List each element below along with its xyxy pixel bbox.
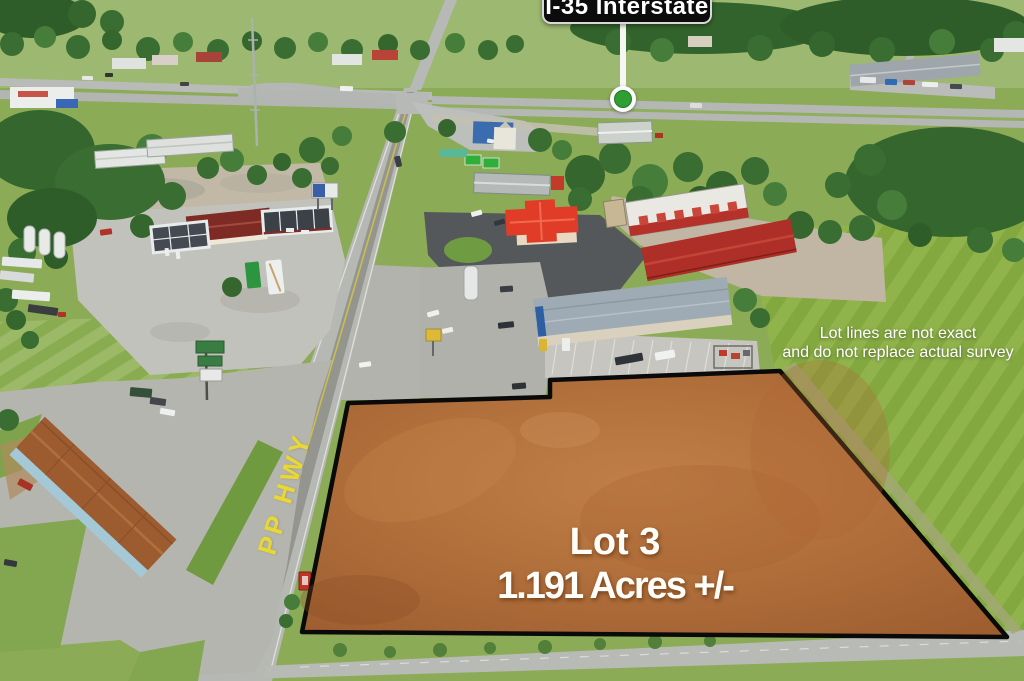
survey-disclaimer: Lot lines are not exact and do not repla… (778, 324, 1018, 362)
lot-title: Lot 3 (450, 521, 780, 563)
shed-top-4 (332, 54, 362, 65)
lot-label: Lot 3 1.191 Acres +/- (450, 521, 780, 609)
interstate-callout-sign: I-35 Interstate (542, 0, 712, 24)
shed-top-5 (372, 50, 398, 60)
green-stand-1 (465, 155, 481, 165)
shed-top-3 (196, 52, 222, 62)
aerial-photo: I-35 Interstate PP HWY Lot lines are not… (0, 0, 1024, 681)
gray-barn (598, 121, 653, 144)
red-vehicle-barn (655, 133, 663, 138)
interstate-callout-label: I-35 Interstate (544, 0, 710, 21)
building-top-right (994, 38, 1024, 52)
gray-warehouse-mid (474, 173, 551, 196)
fuel-canopy-west (151, 221, 209, 253)
teal-bus (440, 149, 467, 157)
pin-dot-icon (614, 90, 632, 108)
tan-shed (603, 199, 626, 228)
shed-top-1 (112, 58, 146, 69)
house-top-1 (688, 36, 712, 47)
red-shed (551, 176, 564, 190)
tires-building (10, 87, 78, 108)
shed-top-2 (152, 55, 178, 65)
white-silo (464, 266, 478, 300)
lot-area: 1.191 Acres +/- (450, 563, 780, 609)
disclaimer-line1: Lot lines are not exact (778, 324, 1018, 343)
green-stand-2 (483, 158, 499, 168)
interstate-location-pin (610, 86, 636, 112)
interstate-callout-stem (620, 20, 626, 87)
fuel-canopy-east (262, 207, 332, 236)
disclaimer-line2: and do not replace actual survey (778, 343, 1018, 362)
